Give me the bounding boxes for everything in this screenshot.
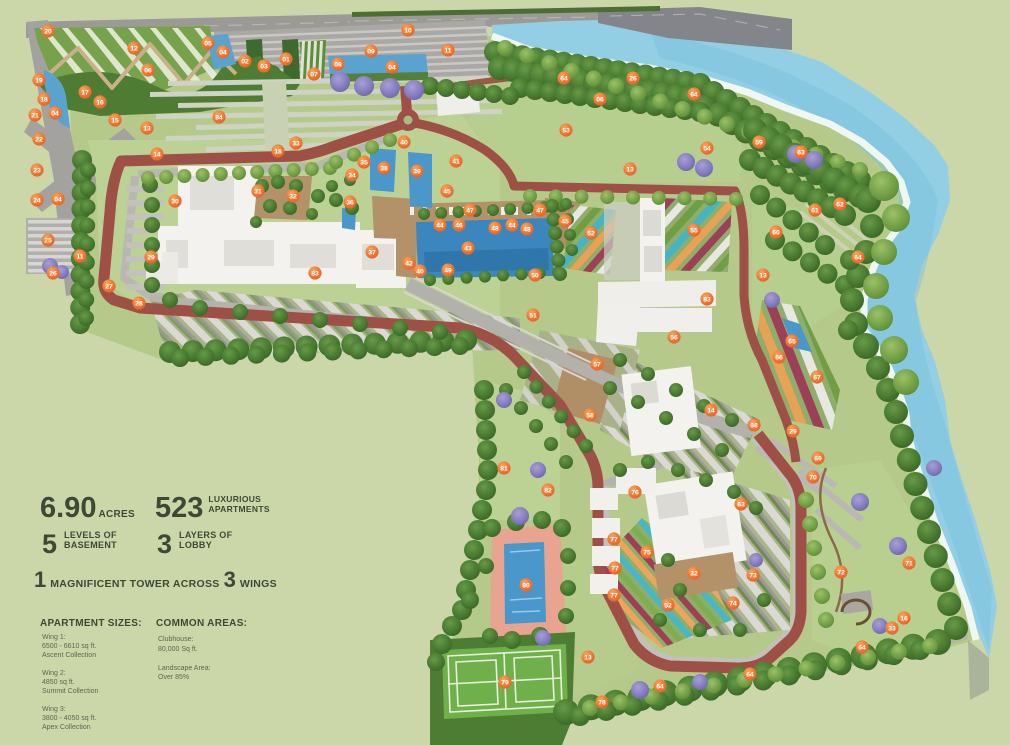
svg-text:82: 82 [544,487,552,494]
svg-text:12: 12 [130,45,138,52]
svg-text:59: 59 [755,139,763,146]
svg-text:40: 40 [416,268,424,275]
svg-text:41: 41 [452,158,460,165]
svg-text:71: 71 [905,560,913,567]
svg-text:75: 75 [643,549,651,556]
svg-text:01: 01 [282,56,290,63]
svg-text:76: 76 [631,489,639,496]
svg-text:04: 04 [219,49,227,56]
svg-text:14: 14 [153,151,161,158]
svg-text:70: 70 [809,474,817,481]
svg-text:14: 14 [707,407,715,414]
svg-text:27: 27 [105,283,113,290]
svg-text:28: 28 [135,300,143,307]
svg-text:65: 65 [788,338,796,345]
svg-text:06: 06 [596,96,604,103]
svg-text:07: 07 [310,71,318,78]
svg-text:51: 51 [529,312,537,319]
svg-text:20: 20 [44,28,52,35]
svg-text:13: 13 [143,125,151,132]
svg-text:04: 04 [51,110,59,117]
svg-text:45: 45 [561,218,569,225]
svg-text:52: 52 [587,230,595,237]
svg-text:67: 67 [813,374,821,381]
svg-text:16: 16 [96,99,104,106]
svg-text:61: 61 [811,207,819,214]
svg-text:26: 26 [629,75,637,82]
svg-text:47: 47 [536,207,544,214]
svg-text:13: 13 [626,166,634,173]
svg-text:60: 60 [772,229,780,236]
svg-text:63: 63 [797,149,805,156]
svg-text:83: 83 [311,270,319,277]
svg-text:73: 73 [749,572,757,579]
svg-text:64: 64 [560,75,568,82]
svg-text:25: 25 [44,237,52,244]
svg-text:24: 24 [33,197,41,204]
svg-text:18: 18 [274,148,282,155]
svg-text:29: 29 [147,254,155,261]
svg-text:68: 68 [750,422,758,429]
svg-text:15: 15 [111,117,119,124]
svg-text:34: 34 [348,172,356,179]
svg-text:22: 22 [35,136,43,143]
svg-text:06: 06 [144,67,152,74]
svg-text:81: 81 [500,465,508,472]
svg-text:10: 10 [404,27,412,34]
svg-text:16: 16 [900,615,908,622]
svg-text:62: 62 [836,201,844,208]
svg-text:64: 64 [656,683,664,690]
svg-text:05: 05 [204,40,212,47]
svg-text:32: 32 [690,570,698,577]
svg-text:33: 33 [292,140,300,147]
svg-text:47: 47 [466,207,474,214]
svg-text:40: 40 [400,139,408,146]
svg-text:53: 53 [562,127,570,134]
svg-text:64: 64 [858,644,866,651]
svg-text:38: 38 [380,165,388,172]
svg-text:77: 77 [611,565,619,572]
svg-text:64: 64 [854,254,862,261]
svg-text:29: 29 [789,428,797,435]
svg-text:17: 17 [81,89,89,96]
svg-text:11: 11 [76,253,83,260]
svg-text:54: 54 [703,145,711,152]
svg-text:43: 43 [464,245,472,252]
svg-text:46: 46 [455,222,463,229]
svg-text:45: 45 [443,188,451,195]
svg-text:79: 79 [501,679,509,686]
svg-text:84: 84 [215,114,223,121]
svg-text:08: 08 [334,61,342,68]
svg-text:57: 57 [593,361,601,368]
svg-text:83: 83 [703,296,711,303]
svg-text:66: 66 [775,354,783,361]
svg-text:32: 32 [289,193,297,200]
svg-text:26: 26 [49,270,57,277]
svg-text:04: 04 [388,64,396,71]
svg-text:56: 56 [670,334,678,341]
svg-text:72: 72 [837,569,845,576]
svg-text:04: 04 [54,196,62,203]
svg-text:02: 02 [241,58,249,65]
svg-text:23: 23 [33,167,41,174]
svg-text:19: 19 [35,77,43,84]
svg-text:55: 55 [690,227,698,234]
svg-text:64: 64 [690,91,698,98]
svg-text:18: 18 [40,96,48,103]
svg-text:80: 80 [522,582,530,589]
svg-text:63: 63 [737,501,745,508]
svg-text:11: 11 [444,47,451,54]
svg-text:21: 21 [31,112,39,119]
svg-text:36: 36 [346,199,354,206]
svg-text:49: 49 [444,267,452,274]
svg-text:78: 78 [598,699,606,706]
svg-text:33: 33 [888,625,896,632]
svg-text:48: 48 [491,225,499,232]
svg-text:58: 58 [586,412,594,419]
svg-text:52: 52 [664,602,672,609]
svg-text:77: 77 [610,536,618,543]
svg-text:09: 09 [367,48,375,55]
svg-text:44: 44 [508,222,516,229]
svg-text:74: 74 [729,600,737,607]
svg-text:30: 30 [171,198,179,205]
svg-text:48: 48 [523,226,531,233]
svg-text:77: 77 [610,592,618,599]
svg-text:50: 50 [531,272,539,279]
svg-text:13: 13 [584,654,592,661]
svg-text:39: 39 [413,168,421,175]
svg-text:35: 35 [360,159,368,166]
svg-text:69: 69 [814,455,822,462]
svg-text:03: 03 [260,63,268,70]
svg-text:44: 44 [436,222,444,229]
svg-text:42: 42 [405,260,413,267]
svg-text:37: 37 [368,249,376,256]
svg-text:64: 64 [746,671,754,678]
svg-text:13: 13 [759,272,767,279]
svg-text:31: 31 [254,188,262,195]
